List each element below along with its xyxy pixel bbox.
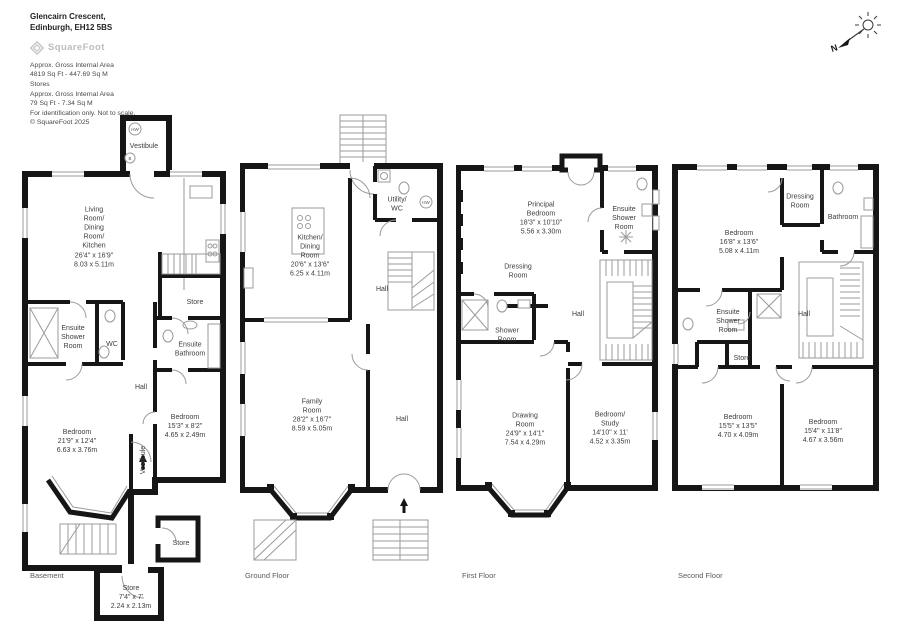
area-note-line: 4819 Sq Ft - 447.69 Sq M [30, 70, 135, 80]
first-floor-plan: Principal Bedroom18'3" x 10'10"5.56 x 3.… [456, 112, 668, 532]
logo-text: SquareFoot [48, 42, 105, 53]
basement-floorplan-drawing: HW B [22, 112, 240, 624]
north-label: N [830, 42, 839, 54]
squarefoot-logo-icon [30, 41, 44, 55]
compass: N [820, 5, 890, 65]
area-note-line: 79 Sq Ft - 7.34 Sq M [30, 99, 135, 109]
address-line2: Edinburgh, EH12 5BS [30, 23, 135, 34]
basement-plan: HW B Vestibule Living Room/ Dining Room/… [22, 112, 240, 624]
floorplan-sheet: Glencairn Crescent, Edinburgh, EH12 5BS … [0, 0, 900, 636]
area-note-line: Approx. Gross Internal Area [30, 61, 135, 71]
ground-floorplan-drawing: HW [240, 112, 444, 572]
hot-water-badge: HW [422, 200, 430, 205]
north-sun-icon: N [820, 5, 890, 60]
squarefoot-logo: SquareFoot [30, 41, 135, 55]
area-note-line: Stores [30, 80, 135, 90]
second-floor-plan: Bedroom16'8" x 13'6"5.08 x 4.11m Dressin… [672, 112, 882, 532]
second-floorplan-drawing [672, 112, 882, 532]
boiler-badge: B [128, 156, 131, 161]
floor-label-second: Second Floor [678, 571, 723, 580]
hot-water-badge: HW [131, 127, 139, 132]
address-line1: Glencairn Crescent, [30, 12, 135, 23]
floor-label-first: First Floor [462, 571, 496, 580]
first-floorplan-drawing [456, 112, 668, 532]
header: Glencairn Crescent, Edinburgh, EH12 5BS … [30, 12, 135, 128]
area-note-line: Approx. Gross Internal Area [30, 90, 135, 100]
floor-label-basement: Basement [30, 571, 64, 580]
ground-floor-plan: HW Kitchen/ Dining Room20'6" x 13'6"6.25… [240, 112, 444, 572]
address: Glencairn Crescent, Edinburgh, EH12 5BS [30, 12, 135, 34]
floor-label-ground: Ground Floor [245, 571, 289, 580]
